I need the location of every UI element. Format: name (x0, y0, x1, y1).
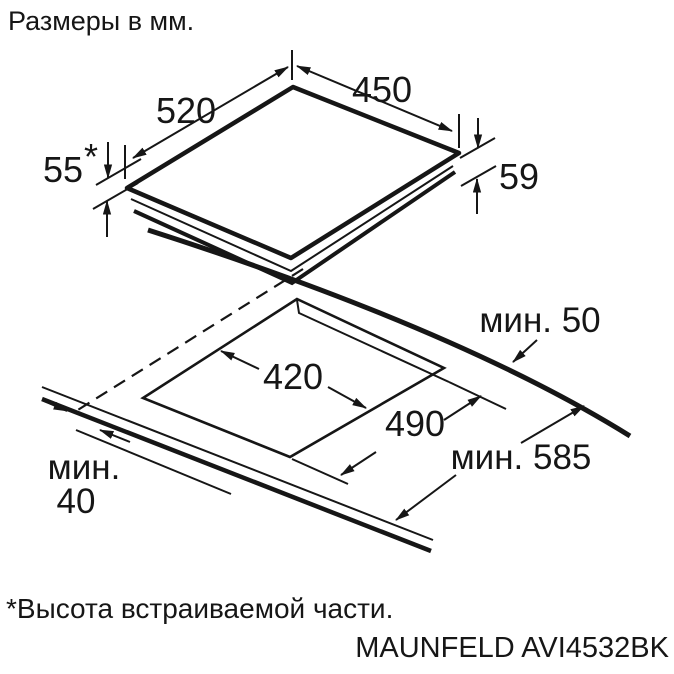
dim-label-55-star: * (84, 136, 98, 177)
dim-label-520: 520 (156, 90, 216, 131)
dim-arrow-min50 (513, 340, 537, 362)
dim-arrow-420-left (221, 351, 259, 369)
installation-diagram: Размеры в мм. 520 450 55 * (0, 0, 674, 674)
dim-arrow-min585-lower (396, 475, 456, 520)
dim-label-min40-value: 40 (57, 482, 96, 521)
worktop-cutout-view: 420 490 мин. 50 мин. 585 мин. 40 (42, 230, 630, 551)
dim-label-min585: мин. 585 (451, 438, 592, 477)
units-note: Размеры в мм. (8, 6, 194, 36)
dim-label-min50: мин. 50 (479, 301, 600, 340)
dim-arrow-420-right (328, 387, 366, 408)
dim-label-420: 420 (263, 356, 323, 397)
hob-body-lower-edge (134, 172, 455, 283)
dim-arrow-490-lower (341, 452, 376, 475)
dim-label-490: 490 (385, 403, 445, 444)
dim-label-450: 450 (352, 69, 412, 110)
extension-line-front (292, 459, 348, 484)
dim-arrow-490-upper (444, 396, 481, 420)
hob-top-view: 520 450 55 * 59 (43, 50, 539, 283)
dimension-drawing-page: Размеры в мм. 520 450 55 * (0, 0, 674, 674)
model-name: MAUNFELD AVI4532BK (355, 632, 669, 664)
dim-label-59: 59 (499, 156, 539, 197)
tick-59-lower (461, 166, 496, 186)
tick-55-lower (93, 183, 138, 209)
dim-label-55: 55 (43, 149, 83, 190)
footnote: *Высота встраиваемой части. (6, 593, 393, 624)
extension-line-rear (449, 382, 506, 409)
